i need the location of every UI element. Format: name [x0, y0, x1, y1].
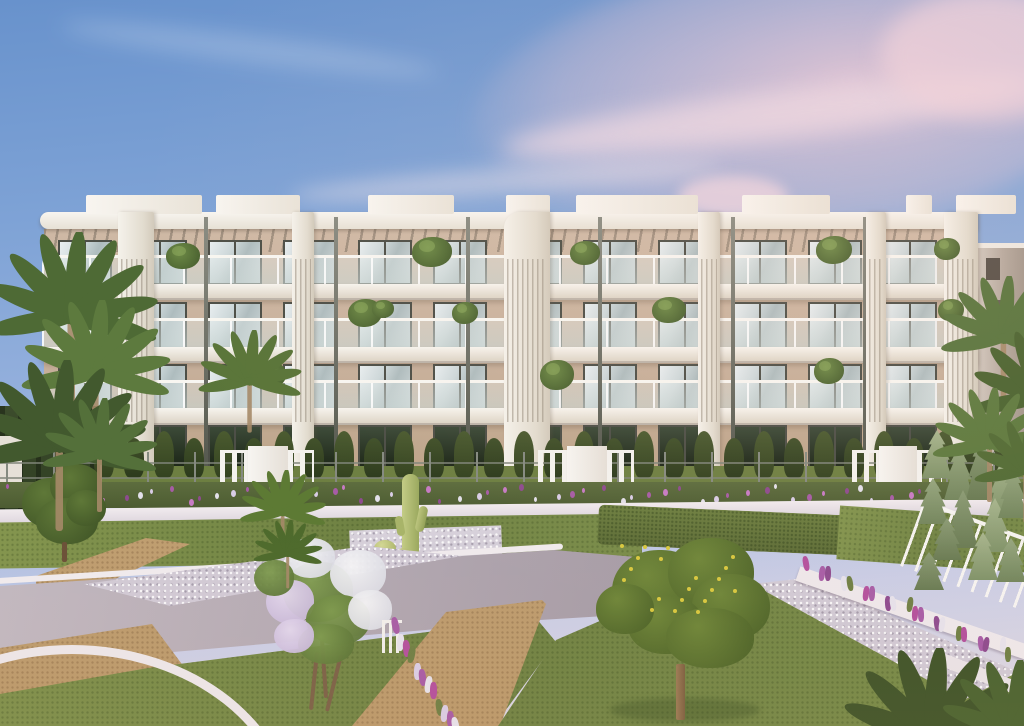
architectural-render-scene: [0, 0, 1024, 726]
palm-tree: [252, 520, 324, 592]
palm-tree: [196, 330, 304, 438]
palm-tree: [40, 398, 160, 518]
palm-trees: [0, 0, 1024, 726]
palm-tree: [936, 660, 1024, 726]
palm-tree: [972, 420, 1024, 528]
